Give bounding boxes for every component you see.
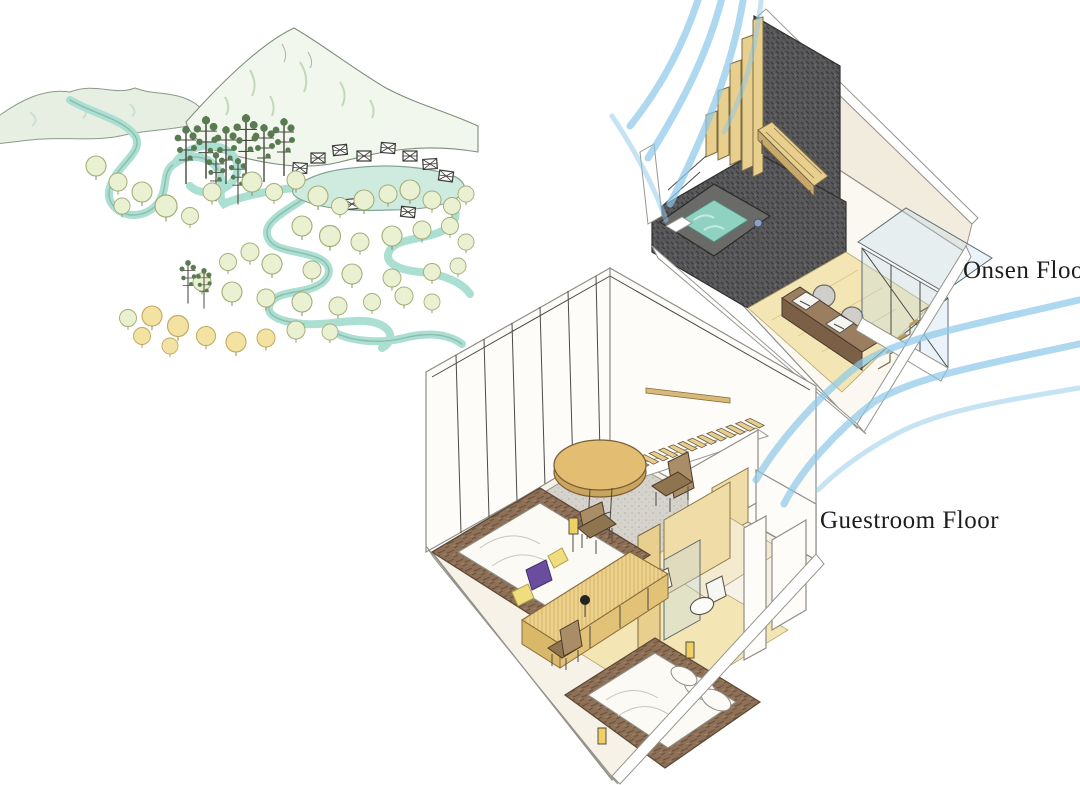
concept-sketch-canvas: Onsen Floor Guestroom Floor: [0, 0, 1080, 785]
bedside-lamp: [686, 642, 694, 658]
sketch-illustration: [0, 0, 1080, 785]
shower-fixture: [754, 219, 762, 227]
reading-lamp: [580, 595, 590, 605]
landscape-illustration: [0, 28, 478, 357]
guestroom-floor-label: Guestroom Floor: [820, 507, 999, 535]
bedside-lamp: [598, 728, 606, 744]
onsen-floor-label: Onsen Floor: [963, 257, 1080, 285]
